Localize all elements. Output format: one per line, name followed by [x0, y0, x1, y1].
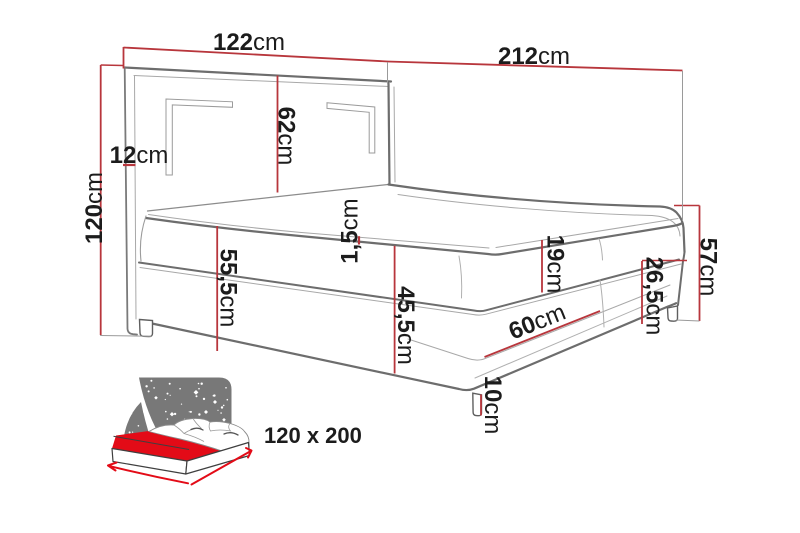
- svg-text:12cm: 12cm: [110, 142, 169, 169]
- svg-text:212cm: 212cm: [498, 43, 570, 70]
- svg-text:57cm: 57cm: [695, 238, 722, 297]
- svg-text:19cm: 19cm: [542, 235, 569, 294]
- svg-text:120cm: 120cm: [81, 172, 108, 244]
- svg-text:45,5cm: 45,5cm: [392, 286, 419, 365]
- svg-text:122cm: 122cm: [213, 29, 285, 56]
- svg-text:1,5cm: 1,5cm: [337, 198, 364, 263]
- svg-text:10cm: 10cm: [479, 376, 506, 435]
- svg-text:120 x 200: 120 x 200: [264, 423, 362, 448]
- svg-text:26,5cm: 26,5cm: [641, 257, 668, 336]
- svg-text:55,5cm: 55,5cm: [215, 249, 242, 328]
- svg-text:62cm: 62cm: [273, 107, 300, 166]
